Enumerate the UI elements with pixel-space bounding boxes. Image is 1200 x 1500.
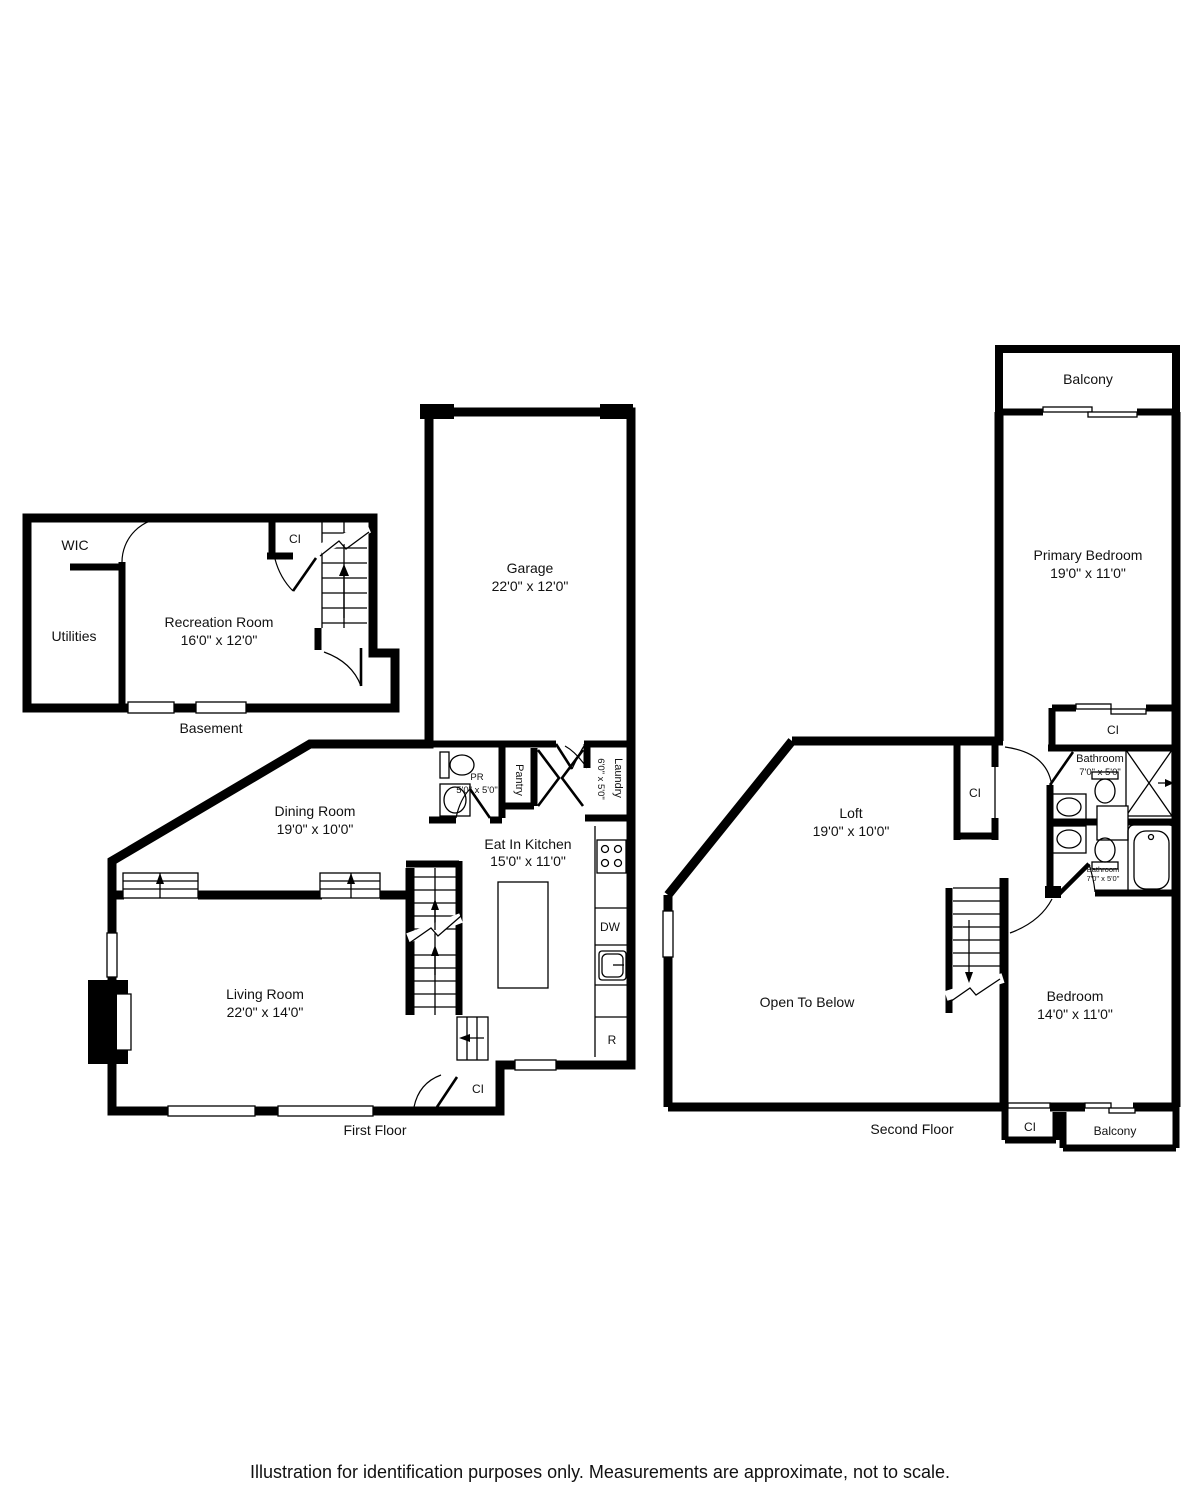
- label-primary-bedroom-dims: 19'0" x 11'0": [1050, 565, 1126, 581]
- bathroom2-door-leaf: [1058, 864, 1089, 895]
- basement-inner-walls: [70, 518, 318, 708]
- label-eat-in-kitchen: Eat In Kitchen: [484, 836, 571, 852]
- label-loft: Loft: [839, 805, 862, 821]
- fireplace-icon: [88, 980, 131, 1064]
- label-bathroom-1: Bathroom: [1076, 753, 1124, 765]
- label-eat-in-kitchen-dims: 15'0" x 11'0": [490, 853, 566, 869]
- balcony-sliding-door: [1043, 407, 1092, 412]
- step-down-railing: [320, 873, 380, 898]
- second-floor-stairs-icon: [946, 878, 1004, 1107]
- basement-closet-door-arc: [275, 559, 293, 591]
- balcony-bottom-sliding-door: [1109, 1108, 1135, 1113]
- label-garage: Garage: [507, 560, 554, 576]
- balcony-sliding-door: [1088, 412, 1137, 417]
- basement-closet-door-leaf: [293, 558, 316, 591]
- main-stairs-icon: [406, 861, 461, 1015]
- label-balcony-top: Balcony: [1063, 371, 1113, 387]
- floor-plan-page: WIC Utilities Recreation Room 16'0" x 12…: [0, 0, 1200, 1500]
- step-down-railing: [123, 873, 198, 898]
- label-laundry: Laundry: [612, 758, 624, 798]
- label-primary-bedroom: Primary Bedroom: [1034, 547, 1143, 563]
- sink-icon: [1052, 794, 1086, 821]
- label-utilities: Utilities: [51, 628, 96, 644]
- basement-window: [128, 702, 174, 713]
- label-living-room-dims: 22'0" x 14'0": [227, 1004, 304, 1020]
- stove-icon: [597, 840, 626, 873]
- stairs-door-arc: [324, 652, 361, 686]
- label-garage-dims: 22'0" x 12'0": [492, 578, 569, 594]
- label-loft-closet: CI: [969, 786, 981, 800]
- bathroom1-door-leaf: [1050, 752, 1073, 785]
- label-living-room: Living Room: [226, 986, 304, 1002]
- label-bathroom-2-dims: 7'0" x 5'0": [1087, 874, 1120, 883]
- garage-door-post: [600, 404, 633, 419]
- label-bathroom-2: Bathroom: [1087, 865, 1120, 874]
- shower-icon: [1126, 750, 1174, 816]
- garage-entry-door-leaf: [556, 744, 572, 769]
- label-basement-closet: CI: [289, 532, 301, 546]
- basement-window: [196, 702, 246, 713]
- pantry-bifold-door: [538, 750, 559, 806]
- sink-icon: [1052, 826, 1086, 853]
- entry-steps-icon: [457, 1017, 488, 1060]
- kitchen-sink-icon: [599, 951, 626, 980]
- living-room-window: [278, 1106, 373, 1116]
- kitchen-island: [498, 882, 548, 988]
- vanity-counter: [1097, 806, 1128, 840]
- label-dining-room: Dining Room: [275, 803, 356, 819]
- label-recreation-room: Recreation Room: [165, 614, 274, 630]
- garage-door-post: [420, 404, 454, 419]
- living-room-window: [168, 1106, 255, 1116]
- kitchen-window: [515, 1060, 556, 1070]
- disclaimer-text: Illustration for identification purposes…: [250, 1462, 950, 1482]
- label-primary-closet: CI: [1107, 723, 1119, 737]
- label-bottom-closet: CI: [1024, 1120, 1036, 1134]
- primary-bedroom-door-arc: [1005, 747, 1052, 788]
- entry-closet-door-leaf: [437, 1077, 457, 1107]
- living-room-window: [107, 933, 117, 977]
- label-bedroom-dims: 14'0" x 11'0": [1037, 1006, 1113, 1022]
- label-dishwasher: DW: [600, 920, 621, 934]
- floor-plan-canvas: WIC Utilities Recreation Room 16'0" x 12…: [0, 0, 1200, 1500]
- bedroom-door-arc: [1010, 899, 1052, 933]
- plan-title-first-floor: First Floor: [344, 1122, 407, 1138]
- open-to-below-window: [663, 911, 673, 957]
- label-powder-room-dims: 5'0" x 5'0": [456, 785, 498, 796]
- bottom-closet-door: [1008, 1103, 1050, 1108]
- pr-toilet-icon: [440, 752, 474, 778]
- label-wic: WIC: [61, 537, 88, 553]
- front-door-arc: [414, 1075, 441, 1107]
- label-bedroom: Bedroom: [1047, 988, 1104, 1004]
- label-powder-room: PR: [470, 772, 483, 783]
- label-open-to-below: Open To Below: [760, 994, 856, 1010]
- label-pantry: Pantry: [513, 764, 525, 796]
- primary-closet-sliding-door: [1076, 704, 1111, 709]
- label-loft-dims: 19'0" x 10'0": [813, 823, 890, 839]
- label-refrigerator: R: [608, 1033, 617, 1047]
- basement-stairs-icon: [320, 518, 369, 628]
- label-laundry-dims: 6'0" x 5'0": [595, 758, 606, 800]
- primary-closet-sliding-door: [1111, 709, 1146, 714]
- label-recreation-room-dims: 16'0" x 12'0": [181, 632, 258, 648]
- second-floor-plan: Balcony Primary Bedroom 19'0" x 11'0" CI…: [663, 349, 1176, 1148]
- bathtub-icon: [1128, 825, 1175, 895]
- plan-title-basement: Basement: [179, 720, 242, 736]
- label-balcony-bottom: Balcony: [1094, 1124, 1137, 1138]
- label-bathroom-1-dims: 7'0" x 5'0": [1079, 767, 1121, 778]
- label-dining-room-dims: 19'0" x 10'0": [277, 821, 354, 837]
- label-entry-closet: CI: [472, 1082, 484, 1096]
- basement-plan: WIC Utilities Recreation Room 16'0" x 12…: [27, 518, 395, 736]
- wic-door-arc: [122, 518, 166, 562]
- balcony-bottom-sliding-door: [1085, 1103, 1111, 1108]
- plan-title-second-floor: Second Floor: [870, 1121, 954, 1137]
